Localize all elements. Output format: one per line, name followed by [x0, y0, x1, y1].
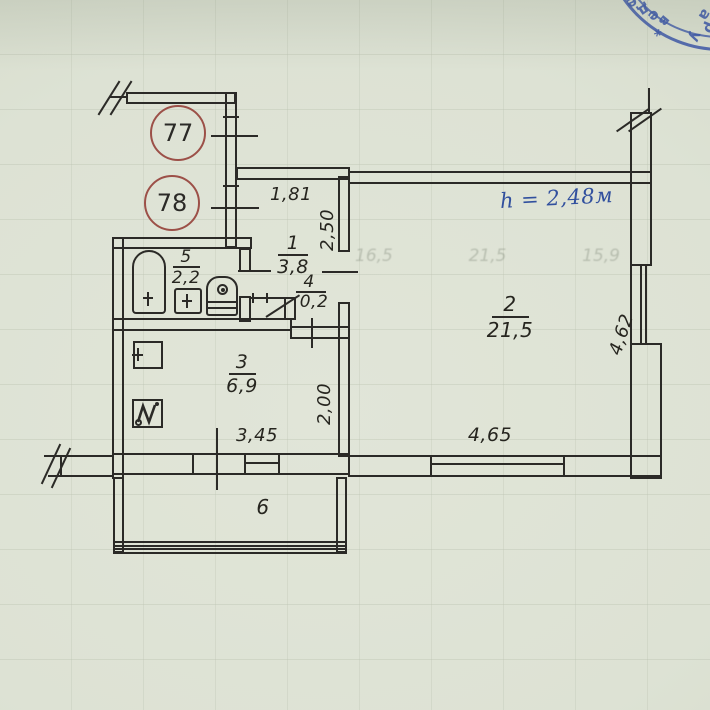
wall-room2-bottom — [348, 455, 662, 477]
toilet-icon — [206, 276, 238, 316]
wall-bathroom-right-upper — [239, 248, 251, 272]
stove-dot-icon — [135, 419, 142, 426]
room-2-area: 21,5 — [485, 320, 535, 340]
joint-tick — [223, 116, 239, 118]
window-right-frame — [640, 264, 642, 345]
floor-plan: 77 78 1,81 2,50 h = 2,48м 2,00 3,45 4,65… — [0, 0, 710, 710]
wall-top-left-outer — [126, 92, 236, 104]
joint-tick — [223, 185, 239, 187]
ceiling-height-note: h = 2,48м — [494, 185, 620, 213]
wall-left-outer — [112, 237, 124, 479]
kitchen-window-jamb — [278, 453, 280, 475]
window-bottom-sill — [430, 463, 565, 465]
apartment-number: 78 — [157, 189, 188, 217]
kitchen-window-jamb — [244, 453, 246, 475]
dim-hall-depth: 2,50 — [319, 200, 339, 260]
balcony-railing — [113, 545, 347, 547]
door-tick-apt78 — [211, 207, 259, 209]
wall-break-icon — [98, 81, 121, 116]
dim-tick-balcony — [216, 428, 218, 490]
wall-below-bathroom — [112, 318, 292, 331]
room-6-number: 6 — [247, 497, 279, 517]
wall-break-icon — [41, 444, 61, 485]
wall-hall-room2-divider — [338, 176, 350, 252]
toilet-icon — [208, 301, 236, 303]
window-right-frame — [645, 264, 647, 345]
balcony-door-jamb — [192, 453, 194, 475]
apartment-circle-77: 77 — [150, 105, 206, 161]
wall-left-stub — [60, 455, 114, 477]
wall-hall-kitchen — [290, 326, 350, 339]
balcony-railing — [113, 548, 347, 550]
floorplan-photo: { "palette": {"paper":"#dde2d4","ink":"#… — [0, 0, 710, 710]
dim-balcony-width: 3,45 — [228, 427, 286, 445]
closet-top-line — [250, 297, 288, 299]
wall-right-outer-upper — [630, 112, 652, 266]
wall-kitchen-bottom — [112, 453, 350, 475]
wall-hall-top — [236, 167, 350, 180]
room-5-area: 2,2 — [168, 270, 204, 287]
wall-room2-top — [348, 171, 652, 184]
door-tick-room2 — [322, 271, 358, 273]
closet-tick — [252, 293, 254, 303]
door-tick-bathroom — [238, 270, 271, 272]
apartment-number: 77 — [163, 119, 194, 147]
room-1-number: 1 — [272, 234, 314, 253]
door-tick-apt77 — [211, 135, 258, 137]
room-4-area: 0,2 — [296, 294, 332, 311]
dim-kitchen-depth: 2,00 — [316, 373, 336, 435]
room-3-number: 3 — [225, 353, 259, 372]
toilet-icon — [208, 307, 236, 309]
toilet-icon — [221, 288, 225, 292]
window-bottom-jamb — [563, 455, 565, 477]
room-3-area: 6,9 — [223, 377, 261, 396]
room-2-number: 2 — [489, 294, 531, 314]
dim-room2-width: 4,65 — [459, 426, 521, 445]
kitchen-window-sill — [244, 462, 280, 464]
dim-hall-width: 1,81 — [262, 186, 320, 204]
room-4-number: 4 — [294, 274, 324, 291]
door-tick-kitchen — [311, 318, 313, 348]
window-bottom-jamb — [430, 455, 432, 477]
tap-cross-icon — [143, 297, 153, 299]
room-5-number: 5 — [171, 249, 201, 266]
tap-cross-icon — [147, 292, 149, 306]
stove-dot-icon — [155, 402, 159, 406]
closet-tick — [266, 293, 268, 303]
balcony-railing — [113, 541, 347, 543]
tap-cross-icon — [132, 354, 143, 356]
tap-cross-icon — [182, 300, 192, 302]
balcony-railing — [113, 552, 347, 554]
bathtub-icon — [132, 250, 166, 314]
apartment-circle-78: 78 — [144, 175, 200, 231]
